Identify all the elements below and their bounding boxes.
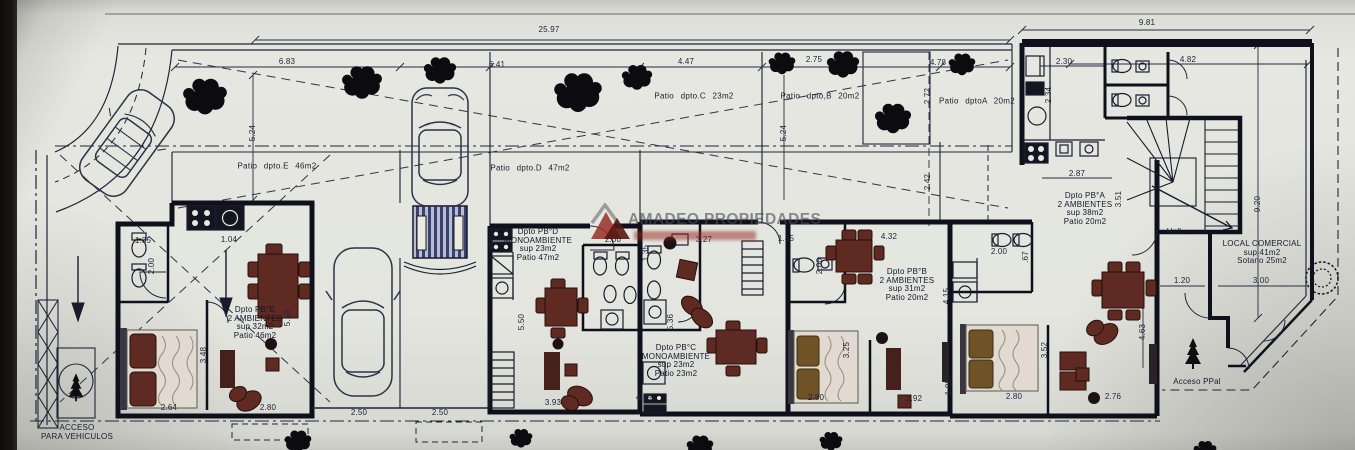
dimension-label: 5.50 xyxy=(284,310,292,326)
dimension-label: 2.50 xyxy=(351,409,367,417)
dimension-label: 25.97 xyxy=(538,26,559,34)
dimension-label: 4.29 xyxy=(636,394,652,402)
dimension-label: 3.51 xyxy=(1115,191,1123,207)
dimension-label: 4.63 xyxy=(1139,324,1147,340)
dimension-label: 3.25 xyxy=(843,342,851,358)
dimension-label: 5.50 xyxy=(518,314,526,330)
dimension-label: 2.92 xyxy=(906,395,922,403)
dimension-label: 2.76 xyxy=(1105,393,1121,401)
area-label-hall: Hall xyxy=(1167,228,1182,237)
dimension-label: 2.72 xyxy=(924,88,932,104)
dimension-label: 5.24 xyxy=(780,125,788,141)
dimension-label: 4.47 xyxy=(678,58,694,66)
apartment-label-line: Patio 20m2 xyxy=(886,293,928,302)
dimension-label: 6.83 xyxy=(279,58,295,66)
dimension-label: 5.24 xyxy=(249,125,257,141)
watermark-tagline-blur xyxy=(634,231,756,240)
apartment-label-pb-b: Dpto PB°B2 AMBIENTESsup 31m2Patio 20m2 xyxy=(880,268,935,302)
dimension-label: 2.64 xyxy=(161,404,177,412)
dimension-label: 2.80 xyxy=(1006,393,1022,401)
area-label-acceso-ppal: Acceso PPal xyxy=(1173,378,1221,387)
watermark-brand-text: AMADEO PROPIEDADES xyxy=(628,211,821,229)
area-label-line: PARA VEHICULOS xyxy=(41,432,113,441)
dimension-label: 2.80 xyxy=(808,394,824,402)
dimension-label: 4.82 xyxy=(1180,56,1196,64)
dimension-label: 2.30 xyxy=(1056,58,1072,66)
apartment-label-pb-e: Dpto PB°E2 AMBIENTESsup 32m2Patio 46m2 xyxy=(228,306,283,340)
patio-label: Patio dpto,B 20m2 xyxy=(781,92,860,101)
floor-plan-photo: 25.979.816.836.414.472.754.782.304.825.2… xyxy=(0,0,1355,450)
dimension-label: 2.80 xyxy=(260,404,276,412)
dimension-label: 6.41 xyxy=(489,61,505,69)
dimension-label: 2.00 xyxy=(991,248,1007,256)
dimension-label: 2.50 xyxy=(432,409,448,417)
apartment-label-line: Patio 46m2 xyxy=(234,331,276,340)
dimension-label: 2.42 xyxy=(924,174,932,190)
patio-label: Patio dpto.D 47m2 xyxy=(490,164,569,173)
area-label-line: Hall xyxy=(1167,227,1182,236)
dimension-label: 5.36 xyxy=(667,314,675,330)
dimension-label: 1.35 xyxy=(135,237,151,245)
apartment-label-line: Patio 47m2 xyxy=(517,253,559,262)
apartment-label-line: Patio 23m2 xyxy=(655,369,697,378)
patio-label: Patio dpto.E 46m2 xyxy=(238,162,317,171)
area-label-local-comercial: LOCAL COMERCIALsup 41m2Sotano 25m2 xyxy=(1223,240,1302,266)
dimension-label: 4.78 xyxy=(930,59,946,67)
dimension-label: 9.81 xyxy=(1139,19,1155,27)
area-label-line: Sotano 25m2 xyxy=(1237,256,1287,265)
area-label-acceso-vehiculos: ACCESOPARA VEHICULOS xyxy=(41,424,113,441)
dimension-label: 1.05 xyxy=(945,379,953,395)
patio-label: Patio dpto.C 23m2 xyxy=(654,92,733,101)
dimension-label: 3.52 xyxy=(1041,342,1049,358)
patio-label: Patio dptoA 20m2 xyxy=(939,97,1015,106)
dimension-label: 1.04 xyxy=(221,236,237,244)
dimension-label: 2.87 xyxy=(1069,170,1085,178)
apartment-label-line: Patio 20m2 xyxy=(1064,217,1106,226)
dimension-label: 2.34 xyxy=(1045,87,1053,103)
dimension-label: 3.00 xyxy=(1253,277,1269,285)
apartment-label-pb-c: Dpto PB°CMONOAMBIENTEsup 23m2Patio 23m2 xyxy=(642,344,710,378)
dimension-label: 2.75 xyxy=(806,56,822,64)
area-label-line: Acceso PPal xyxy=(1173,377,1221,386)
apartment-label-pb-d: Dpto PB°DMONOAMBIENTEsup 23m2Patio 47m2 xyxy=(504,228,572,262)
dimension-label: 2.00 xyxy=(148,258,156,274)
apartment-label-pb-a: Dpto PB°A2 AMBIENTESsup 38m2Patio 20m2 xyxy=(1058,192,1113,226)
dimension-label: 9.20 xyxy=(1254,196,1262,212)
dimension-label: 3.93 xyxy=(545,399,561,407)
dimension-label: 4.15 xyxy=(943,288,951,304)
watermark: AMADEO PROPIEDADES xyxy=(590,201,950,249)
dimension-label: 1.20 xyxy=(1174,277,1190,285)
dimension-label: 3.48 xyxy=(200,347,208,363)
dimension-label: 2.00 xyxy=(816,258,824,274)
dimension-label: .67 xyxy=(1022,251,1030,263)
